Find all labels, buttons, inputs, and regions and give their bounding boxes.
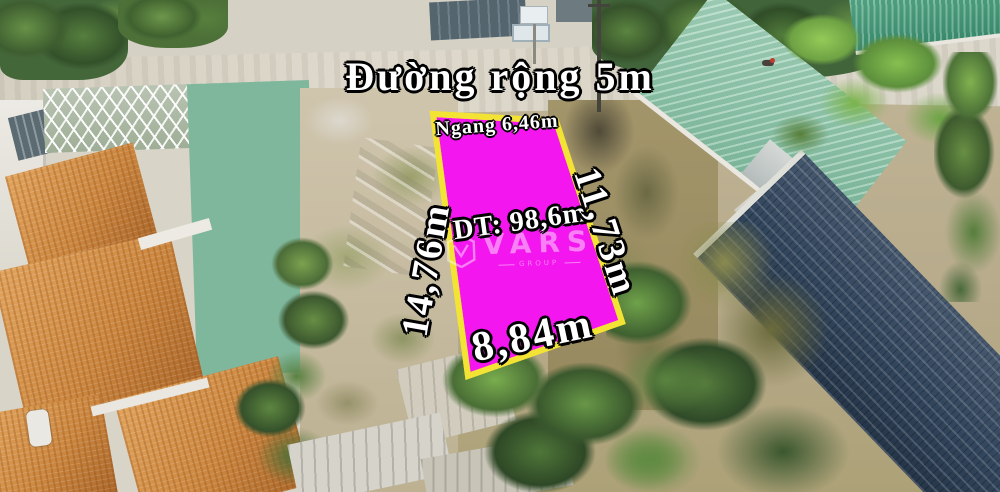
road-width-label: Đường rộng 5m [330,56,670,98]
trees-top-left-2 [118,0,228,48]
motorbike-rider [770,58,775,63]
aerial-photo: VARS GROUP Đường rộng 5m Ngang 6,46m DT:… [0,0,1000,492]
street-sign [520,6,548,24]
trees-top-left [0,0,128,80]
utility-pole-arm [588,4,610,7]
solar-panel [512,24,550,42]
